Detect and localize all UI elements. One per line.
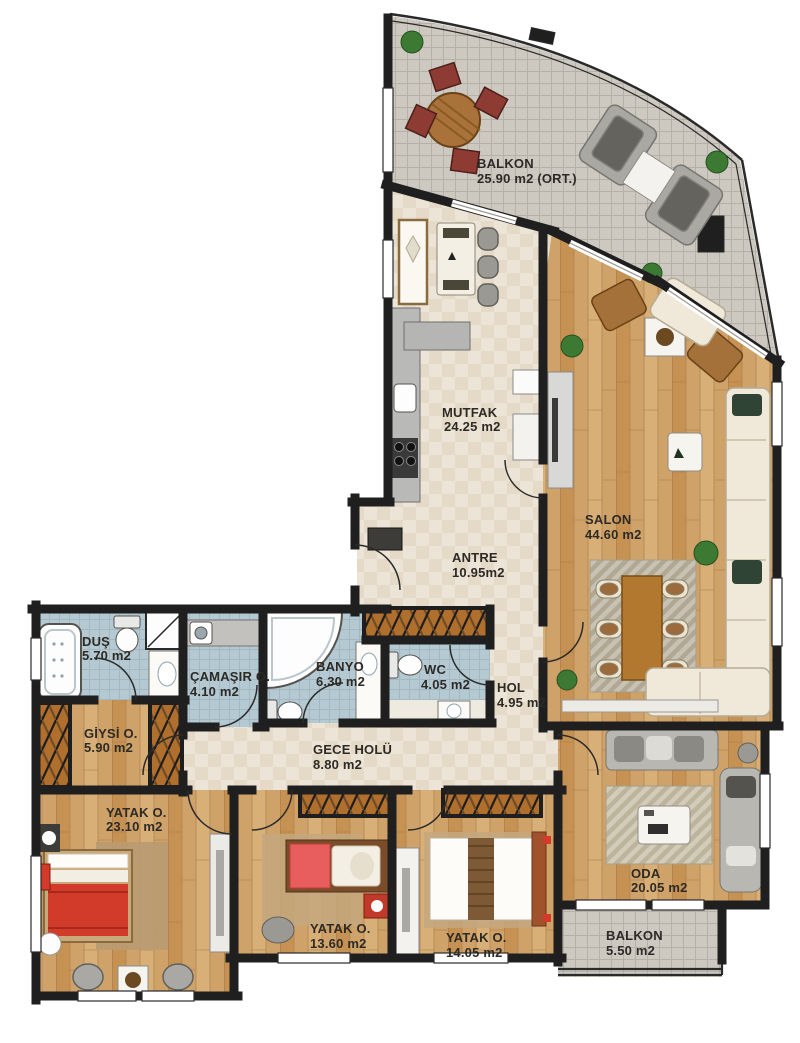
svg-text:BALKON: BALKON xyxy=(606,928,663,943)
kitchen-island xyxy=(404,322,470,350)
label-banyo: BANYO 6.30 m2 xyxy=(316,659,365,689)
svg-text:10.95m2: 10.95m2 xyxy=(452,565,505,580)
tv xyxy=(552,398,558,462)
svg-text:ÇAMAŞIR O.: ÇAMAŞIR O. xyxy=(190,669,270,684)
camasir-fixtures xyxy=(186,620,260,646)
svg-text:5.70 m2: 5.70 m2 xyxy=(82,648,131,663)
tv-unit xyxy=(548,372,573,488)
dining-table xyxy=(622,576,662,680)
console xyxy=(562,700,718,712)
label-mutfak: MUTFAK 24.25 m2 xyxy=(442,405,501,434)
svg-text:5.90 m2: 5.90 m2 xyxy=(84,740,133,755)
svg-text:6.30 m2: 6.30 m2 xyxy=(316,674,365,689)
svg-text:4.10 m2: 4.10 m2 xyxy=(190,684,239,699)
label-yatak-master: YATAK O. 23.10 m2 xyxy=(106,805,167,834)
kitchen-chairs xyxy=(478,228,498,306)
svg-text:24.25 m2: 24.25 m2 xyxy=(444,419,501,434)
svg-text:MUTFAK: MUTFAK xyxy=(442,405,498,420)
fridge xyxy=(513,370,542,394)
label-giysi: GİYSİ O. 5.90 m2 xyxy=(84,726,138,755)
svg-text:ANTRE: ANTRE xyxy=(452,550,498,565)
svg-text:5.50 m2: 5.50 m2 xyxy=(606,943,655,958)
toilet xyxy=(114,616,140,652)
svg-text:DUŞ: DUŞ xyxy=(82,634,110,649)
svg-text:YATAK O.: YATAK O. xyxy=(106,805,167,820)
svg-text:ODA: ODA xyxy=(631,866,661,881)
svg-text:BALKON: BALKON xyxy=(477,156,534,171)
tall-cabinet xyxy=(513,414,542,460)
svg-text:13.60 m2: 13.60 m2 xyxy=(310,936,367,951)
svg-text:44.60 m2: 44.60 m2 xyxy=(585,527,642,542)
pouf xyxy=(39,933,61,955)
shoe-cabinet xyxy=(368,528,402,550)
svg-text:25.90 m2 (ORT.): 25.90 m2 (ORT.) xyxy=(477,171,577,186)
svg-text:14.05 m2: 14.05 m2 xyxy=(446,945,503,960)
floorplan-page: BALKON 25.90 m2 (ORT.) MUTFAK 24.25 m2 S… xyxy=(0,0,800,1043)
svg-text:4.05 m2: 4.05 m2 xyxy=(421,677,470,692)
floorplan-drawing: BALKON 25.90 m2 (ORT.) MUTFAK 24.25 m2 S… xyxy=(0,0,800,1043)
svg-text:8.80 m2: 8.80 m2 xyxy=(313,757,362,772)
svg-text:WC: WC xyxy=(424,662,446,677)
center-table xyxy=(668,433,702,471)
headboard xyxy=(532,832,546,926)
svg-text:YATAK O.: YATAK O. xyxy=(310,921,371,936)
svg-text:HOL: HOL xyxy=(497,680,525,695)
svg-text:4.95 m2: 4.95 m2 xyxy=(497,695,546,710)
svg-text:SALON: SALON xyxy=(585,512,632,527)
side-stool xyxy=(738,743,758,763)
svg-text:GİYSİ O.: GİYSİ O. xyxy=(84,726,138,741)
svg-text:BANYO: BANYO xyxy=(316,659,364,674)
svg-text:GECE HOLÜ: GECE HOLÜ xyxy=(313,742,392,757)
label-yatak-3: YATAK O. 14.05 m2 xyxy=(446,930,507,960)
svg-text:YATAK O.: YATAK O. xyxy=(446,930,507,945)
label-balkon-bottom: BALKON 5.50 m2 xyxy=(606,928,663,958)
beanbag xyxy=(262,917,294,943)
svg-text:23.10 m2: 23.10 m2 xyxy=(106,819,163,834)
label-yatak-2: YATAK O. 13.60 m2 xyxy=(310,921,371,951)
label-antre: ANTRE 10.95m2 xyxy=(452,550,505,580)
svg-text:20.05 m2: 20.05 m2 xyxy=(631,880,688,895)
kitchen-sink xyxy=(394,384,416,412)
